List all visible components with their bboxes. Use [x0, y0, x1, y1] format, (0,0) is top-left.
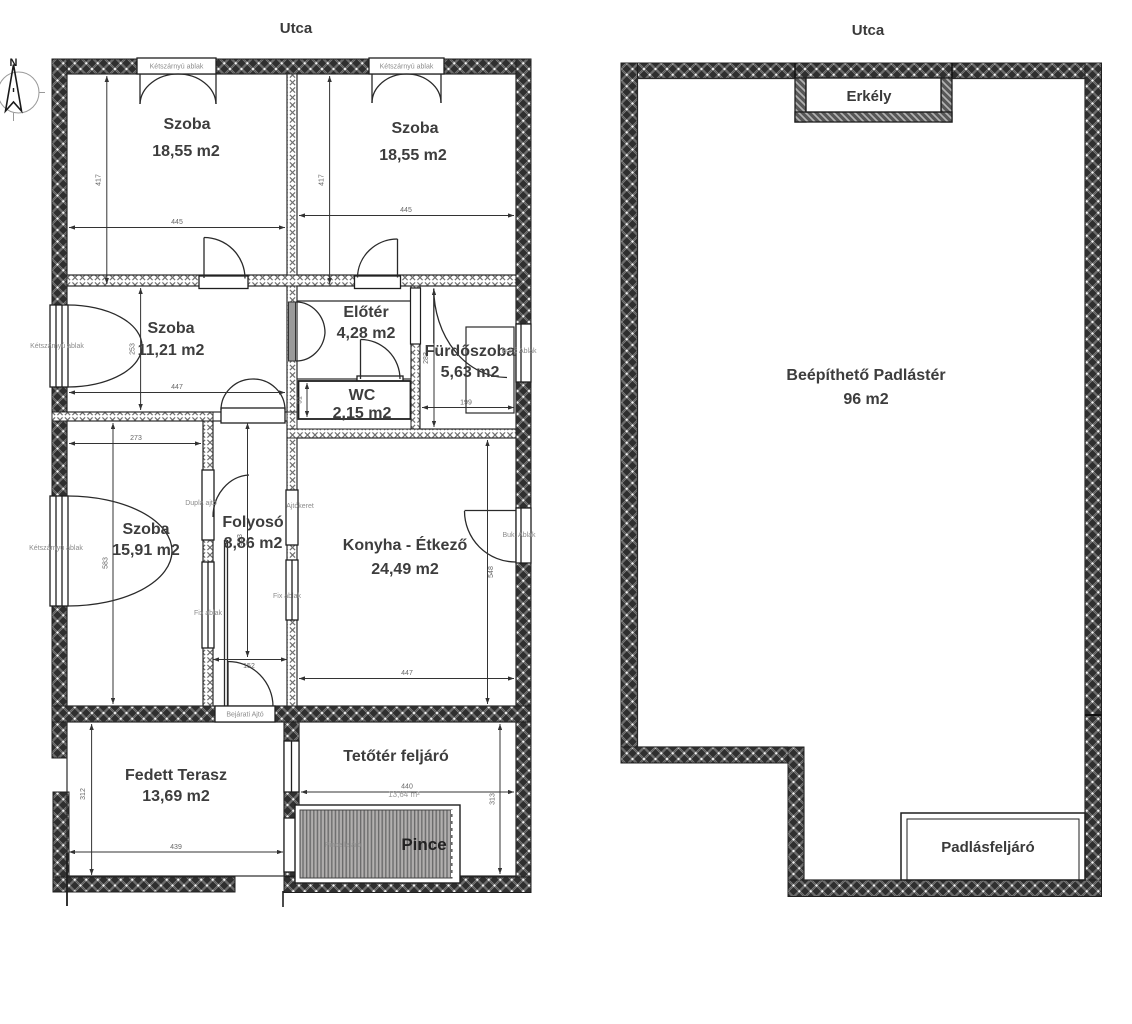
svg-text:253: 253 [130, 343, 137, 355]
svg-text:Bejárati Ajtó: Bejárati Ajtó [226, 712, 263, 719]
svg-text:Fedett Terasz: Fedett Terasz [125, 767, 227, 784]
svg-text:Konyha - Étkező: Konyha - Étkező [343, 535, 468, 554]
svg-text:445: 445 [400, 207, 412, 214]
svg-text:18,55 m2: 18,55 m2 [379, 147, 447, 164]
svg-text:548: 548 [488, 566, 495, 578]
svg-text:15,91 m2: 15,91 m2 [112, 542, 180, 559]
svg-text:13,69 m2: 13,69 m2 [142, 788, 210, 805]
svg-text:24,49 m2: 24,49 m2 [371, 561, 439, 578]
svg-text:583: 583 [103, 557, 110, 569]
svg-text:WC: WC [349, 387, 376, 404]
svg-text:Szoba: Szoba [147, 320, 194, 337]
svg-text:152: 152 [243, 663, 255, 670]
svg-text:Szoba: Szoba [163, 116, 210, 133]
svg-text:439: 439 [170, 844, 182, 851]
svg-text:18,55 m2: 18,55 m2 [152, 143, 220, 160]
svg-text:Fix ablak: Fix ablak [273, 593, 302, 600]
svg-text:Ajtókeret: Ajtókeret [286, 503, 314, 510]
svg-text:2,15 m2: 2,15 m2 [333, 405, 392, 422]
svg-text:199: 199 [460, 400, 472, 407]
svg-text:91: 91 [297, 396, 304, 404]
svg-text:Kétszárnyú ablak: Kétszárnyú ablak [150, 64, 204, 71]
svg-text:8,86 m2: 8,86 m2 [224, 535, 283, 552]
svg-text:Pince lejáró: Pince lejáró [325, 842, 362, 849]
svg-text:Tetőtér feljáró: Tetőtér feljáró [343, 748, 449, 765]
svg-text:Buk. Ablak: Buk. Ablak [502, 532, 536, 539]
svg-text:4,28 m2: 4,28 m2 [337, 325, 396, 342]
svg-text:447: 447 [171, 384, 183, 391]
svg-text:Dupla ajtó: Dupla ajtó [185, 500, 217, 507]
svg-text:Fix ablak: Fix ablak [194, 610, 223, 617]
svg-text:Beépíthető Padlástér: Beépíthető Padlástér [786, 367, 945, 384]
svg-text:11,21 m2: 11,21 m2 [138, 342, 205, 359]
svg-text:Utca: Utca [852, 22, 885, 39]
svg-text:Folyosó: Folyosó [222, 514, 284, 531]
svg-text:273: 273 [130, 435, 142, 442]
svg-text:Kétszárnyú ablak: Kétszárnyú ablak [29, 545, 83, 552]
svg-text:Padlásfeljáró: Padlásfeljáró [941, 839, 1034, 856]
svg-text:417: 417 [318, 174, 325, 186]
svg-text:Szoba: Szoba [122, 521, 169, 538]
svg-text:96 m2: 96 m2 [843, 391, 888, 408]
svg-text:5,63 m2: 5,63 m2 [441, 364, 500, 381]
svg-text:13,64 m²: 13,64 m² [388, 790, 420, 799]
svg-text:Kétszárnyú ablak: Kétszárnyú ablak [380, 64, 434, 71]
svg-text:417: 417 [96, 174, 103, 186]
svg-text:Bukó Ablak: Bukó Ablak [501, 348, 537, 355]
svg-text:313: 313 [490, 793, 497, 805]
svg-text:Utca: Utca [280, 20, 313, 37]
svg-text:Pince: Pince [401, 835, 446, 854]
svg-text:Előtér: Előtér [343, 304, 388, 321]
svg-text:N: N [10, 57, 18, 69]
svg-text:Kétszárnyú ablak: Kétszárnyú ablak [30, 343, 84, 350]
svg-text:447: 447 [401, 670, 413, 677]
svg-text:312: 312 [80, 788, 87, 800]
svg-text:Erkély: Erkély [846, 88, 892, 105]
svg-text:445: 445 [171, 219, 183, 226]
svg-text:Szoba: Szoba [391, 120, 438, 137]
